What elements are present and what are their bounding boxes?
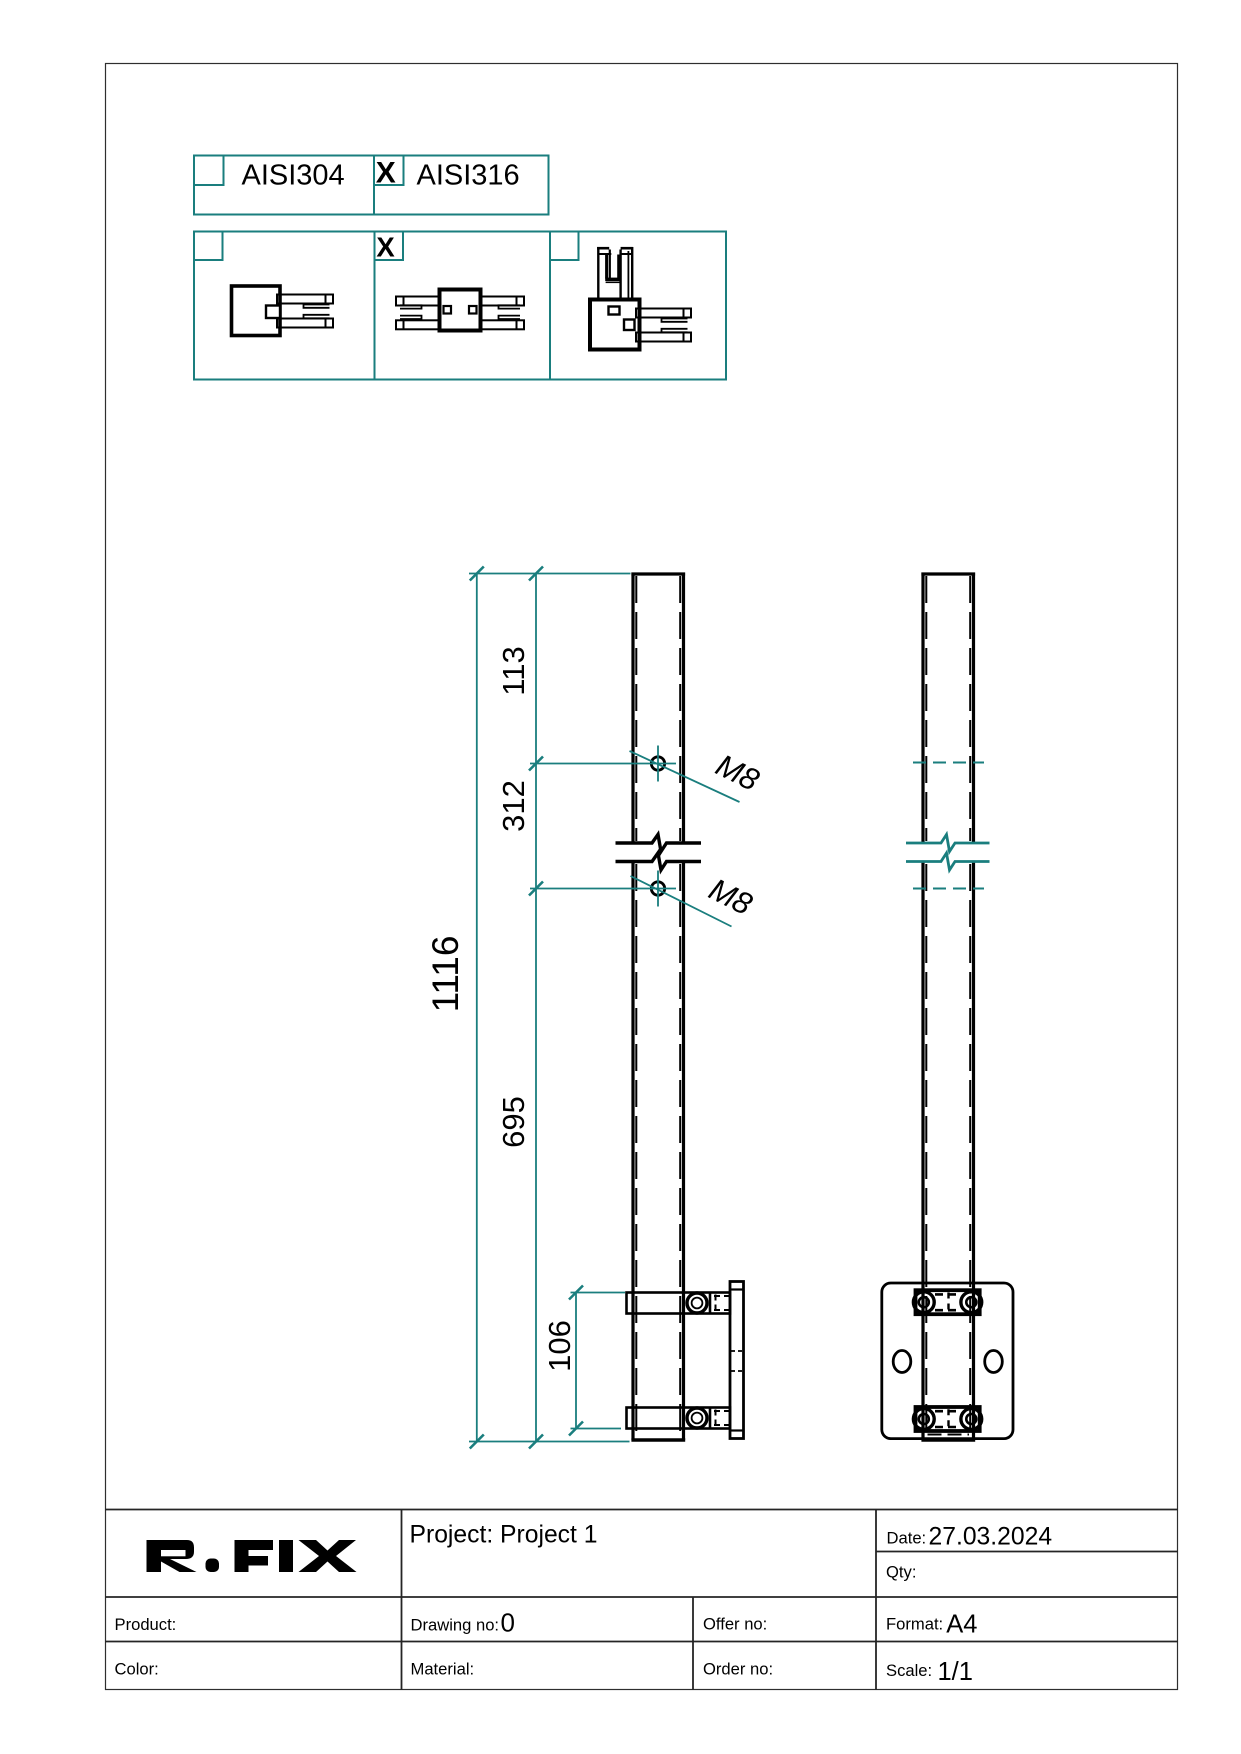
- svg-text:0: 0: [501, 1608, 515, 1638]
- svg-text:A4: A4: [946, 1610, 977, 1638]
- svg-text:AISI316: AISI316: [417, 160, 520, 192]
- svg-text:695: 695: [496, 1096, 531, 1148]
- svg-text:X: X: [376, 232, 395, 263]
- svg-text:Material:: Material:: [411, 1659, 475, 1678]
- svg-text:Project: Project 1: Project: Project 1: [410, 1522, 598, 1549]
- svg-text:Qty:: Qty:: [886, 1562, 916, 1581]
- svg-text:1116: 1116: [425, 936, 466, 1013]
- svg-text:Product:: Product:: [115, 1615, 177, 1634]
- svg-text:312: 312: [496, 780, 531, 832]
- svg-text:Date:: Date:: [887, 1529, 927, 1548]
- svg-text:106: 106: [542, 1320, 577, 1372]
- svg-text:27.03.2024: 27.03.2024: [929, 1523, 1053, 1550]
- svg-text:M8: M8: [704, 871, 759, 922]
- svg-text:X: X: [376, 157, 396, 190]
- svg-text:Color:: Color:: [115, 1659, 159, 1678]
- svg-text:Scale:: Scale:: [886, 1661, 932, 1680]
- svg-text:Drawing no:: Drawing no:: [411, 1616, 500, 1635]
- svg-text:113: 113: [496, 646, 531, 695]
- svg-text:1/1: 1/1: [938, 1658, 973, 1686]
- svg-text:Format:: Format:: [886, 1615, 943, 1634]
- svg-text:AISI304: AISI304: [242, 160, 345, 192]
- svg-text:Order no:: Order no:: [703, 1659, 773, 1678]
- svg-text:M8: M8: [710, 747, 765, 798]
- svg-text:Offer no:: Offer no:: [703, 1615, 767, 1634]
